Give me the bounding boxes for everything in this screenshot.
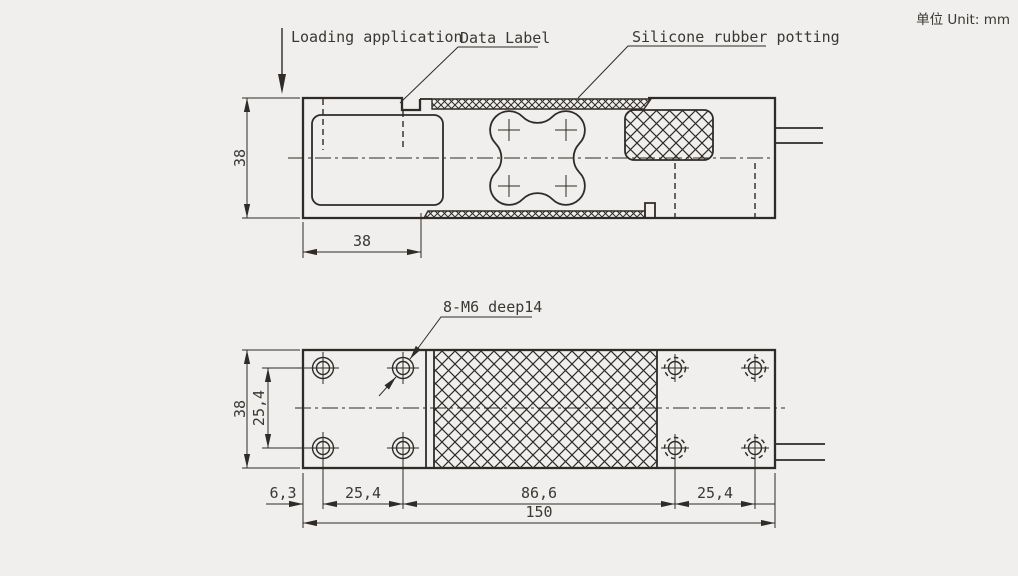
- holes-label: 8-M6 deep14: [443, 298, 542, 316]
- threaded-hole: [661, 434, 689, 462]
- dim-total-value: 150: [525, 503, 552, 521]
- dim-mount-length-value: 38: [353, 232, 371, 250]
- top-view: Loading application Data Label Silicone …: [231, 28, 840, 258]
- drawing-page: 单位 Unit: mm: [0, 0, 1018, 576]
- threaded-hole: [741, 434, 769, 462]
- dim-total-length: 150: [303, 503, 775, 523]
- loading-application-label: Loading application: [291, 28, 463, 46]
- data-label-label: Data Label: [460, 29, 550, 47]
- dim-hole-rows-value: 25,4: [250, 390, 268, 426]
- bottom-view: 8-M6 deep14 38 25,4: [231, 298, 825, 528]
- potting-end-tab: [645, 203, 655, 218]
- unit-note: 单位 Unit: mm: [916, 12, 1010, 28]
- dim-bottom-height-value: 38: [231, 400, 249, 418]
- dim-hole-cols-left-value: 25,4: [345, 484, 381, 502]
- threaded-hole: [661, 354, 689, 382]
- technical-drawing: 单位 Unit: mm: [0, 0, 1018, 576]
- cable-lines-top-view: [776, 128, 823, 143]
- loading-application-callout: Loading application: [278, 28, 463, 94]
- silicone-label: Silicone rubber potting: [632, 28, 840, 46]
- potting-area: [434, 350, 657, 468]
- dim-top-height-value: 38: [231, 149, 249, 167]
- silicone-potting-strip-top: [432, 99, 651, 109]
- dim-edge-offset-value: 6,3: [269, 484, 296, 502]
- mounting-hole: [307, 352, 339, 384]
- loading-arrow-head: [278, 74, 286, 94]
- dim-hole-cols-right-value: 25,4: [697, 484, 733, 502]
- dim-chain: 6,3 25,4 86,6 25,4: [266, 484, 775, 504]
- dim-mount-length: 38: [303, 213, 421, 258]
- data-label-pocket: [312, 115, 443, 205]
- cable-lines-bottom-view: [776, 444, 825, 460]
- dim-middle-value: 86,6: [521, 484, 557, 502]
- threaded-hole: [741, 354, 769, 382]
- silicone-potting-strip-bottom: [424, 203, 655, 218]
- mounting-hole: [387, 432, 419, 464]
- silicone-callout: Silicone rubber potting: [578, 28, 840, 98]
- mounting-hole: [387, 352, 419, 384]
- mounting-hole: [307, 432, 339, 464]
- potting-window: [625, 110, 713, 160]
